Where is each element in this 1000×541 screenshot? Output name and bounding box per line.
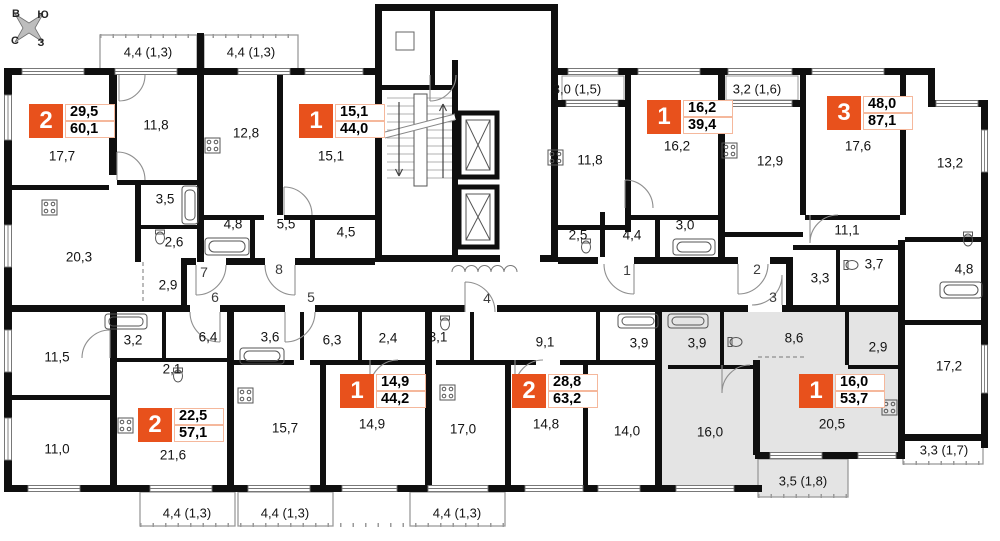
compass-direction-label: С [11,35,19,47]
apartment-badge[interactable]: 2 22,5 57,1 [138,408,224,442]
balcony-area-label: 3,0 (1,5) [553,82,601,97]
room-area-label: 3,0 [676,218,695,233]
badge-area-living: 48,0 [863,96,913,113]
compass-direction-label: В [12,8,20,20]
room-area-label: 2,4 [379,331,398,346]
badge-area-living: 15,1 [335,104,385,121]
room-area-label: 3,9 [688,336,707,351]
room-area-label: 6,4 [199,330,218,345]
room-area-label: 16,0 [697,425,723,440]
room-area-label: 6,3 [323,333,342,348]
apartment-badge[interactable]: 2 29,5 60,1 [29,104,115,138]
badge-area-total: 53,7 [835,391,885,408]
apartment-badge[interactable]: 1 16,0 53,7 [799,374,885,408]
room-area-label: 20,5 [819,417,845,432]
compass-direction-label: Ю [37,9,48,21]
room-area-label: 3,3 [811,271,830,286]
room-area-label: 12,9 [757,154,783,169]
room-area-label: 17,6 [845,139,871,154]
compass-direction-label: З [38,37,45,49]
room-area-label: 2,9 [869,340,888,355]
badge-room-count: 1 [299,104,333,138]
balcony-area-label: 4,4 (1,3) [433,506,481,521]
balcony-area-label: 3,3 (1,7) [920,443,968,458]
room-area-label: 13,2 [937,156,963,171]
badge-area-living: 28,8 [548,374,598,391]
apartment-badge[interactable]: 2 28,8 63,2 [512,374,598,408]
room-area-label: 17,2 [936,359,962,374]
room-area-label: 11,8 [143,118,168,133]
room-area-label: 14,8 [533,417,559,432]
badge-room-count: 2 [138,408,172,442]
room-area-label: 12,8 [233,126,259,141]
unit-number: 3 [769,289,777,305]
room-area-label: 11,5 [44,350,69,365]
badge-area-total: 60,1 [65,121,115,138]
apartment-badge[interactable]: 3 48,0 87,1 [827,96,913,130]
apartment-badge[interactable]: 1 14,9 44,2 [340,374,426,408]
unit-number: 5 [307,289,315,305]
badge-area-total: 87,1 [863,113,913,130]
room-area-label: 15,1 [318,149,344,164]
badge-area-living: 29,5 [65,104,115,121]
badge-area-living: 16,0 [835,374,885,391]
unit-number: 7 [200,264,208,280]
badge-area-total: 57,1 [174,425,224,442]
room-area-label: 21,6 [160,448,186,463]
balcony-area-label: 4,4 (1,3) [227,45,275,60]
balcony-area-label: 3,2 (1,6) [733,82,781,97]
room-area-label: 9,1 [536,335,555,350]
room-area-label: 11,0 [44,442,69,457]
unit-number: 8 [275,261,283,277]
room-area-label: 8,6 [785,331,804,346]
room-area-label: 5,5 [277,217,296,232]
badge-room-count: 2 [29,104,63,138]
apartment-badge[interactable]: 1 16,2 39,4 [647,100,733,134]
badge-room-count: 2 [512,374,546,408]
room-area-label: 4,8 [224,217,243,232]
room-area-label: 14,9 [359,417,385,432]
unit-number: 4 [483,290,491,306]
badge-room-count: 1 [647,100,681,134]
room-area-label: 15,7 [272,421,298,436]
room-area-label: 16,2 [664,139,690,154]
unit-number: 2 [753,261,761,277]
badge-area-living: 16,2 [683,100,733,117]
badge-area-living: 22,5 [174,408,224,425]
room-area-label: 14,0 [614,424,640,439]
badge-room-count: 1 [340,374,374,408]
badge-room-count: 1 [799,374,833,408]
room-area-label: 3,2 [124,333,143,348]
room-area-label: 4,5 [337,225,356,240]
floor-plan-labels: 2 29,5 60,1 17,711,83,52,62,920,3 1 15,1… [0,0,1000,541]
room-area-label: 3,9 [630,336,649,351]
room-area-label: 2,5 [569,228,588,243]
badge-room-count: 3 [827,96,861,130]
room-area-label: 11,8 [577,153,602,168]
room-area-label: 2,6 [165,235,184,250]
room-area-label: 20,3 [66,250,92,265]
room-area-label: 3,1 [429,330,448,345]
room-area-label: 4,8 [955,262,974,277]
badge-area-total: 44,0 [335,121,385,138]
room-area-label: 4,4 [623,228,642,243]
badge-area-total: 44,2 [376,391,426,408]
balcony-area-label: 4,4 (1,3) [261,506,309,521]
badge-area-living: 14,9 [376,374,426,391]
room-area-label: 3,6 [261,330,280,345]
unit-number: 1 [623,262,631,278]
badge-area-total: 63,2 [548,391,598,408]
room-area-label: 3,7 [865,257,884,272]
apartment-badge[interactable]: 1 15,1 44,0 [299,104,385,138]
room-area-label: 17,0 [450,422,476,437]
unit-number: 6 [211,289,219,305]
badge-area-total: 39,4 [683,117,733,134]
floor-plan: 2 29,5 60,1 17,711,83,52,62,920,3 1 15,1… [0,0,1000,541]
room-area-label: 17,7 [49,149,75,164]
balcony-area-label: 4,4 (1,3) [124,45,172,60]
room-area-label: 2,1 [163,362,182,377]
balcony-area-label: 4,4 (1,3) [163,506,211,521]
room-area-label: 2,9 [159,278,178,293]
room-area-label: 11,1 [834,223,859,238]
balcony-area-label: 3,5 (1,8) [779,474,827,489]
room-area-label: 3,5 [156,192,175,207]
